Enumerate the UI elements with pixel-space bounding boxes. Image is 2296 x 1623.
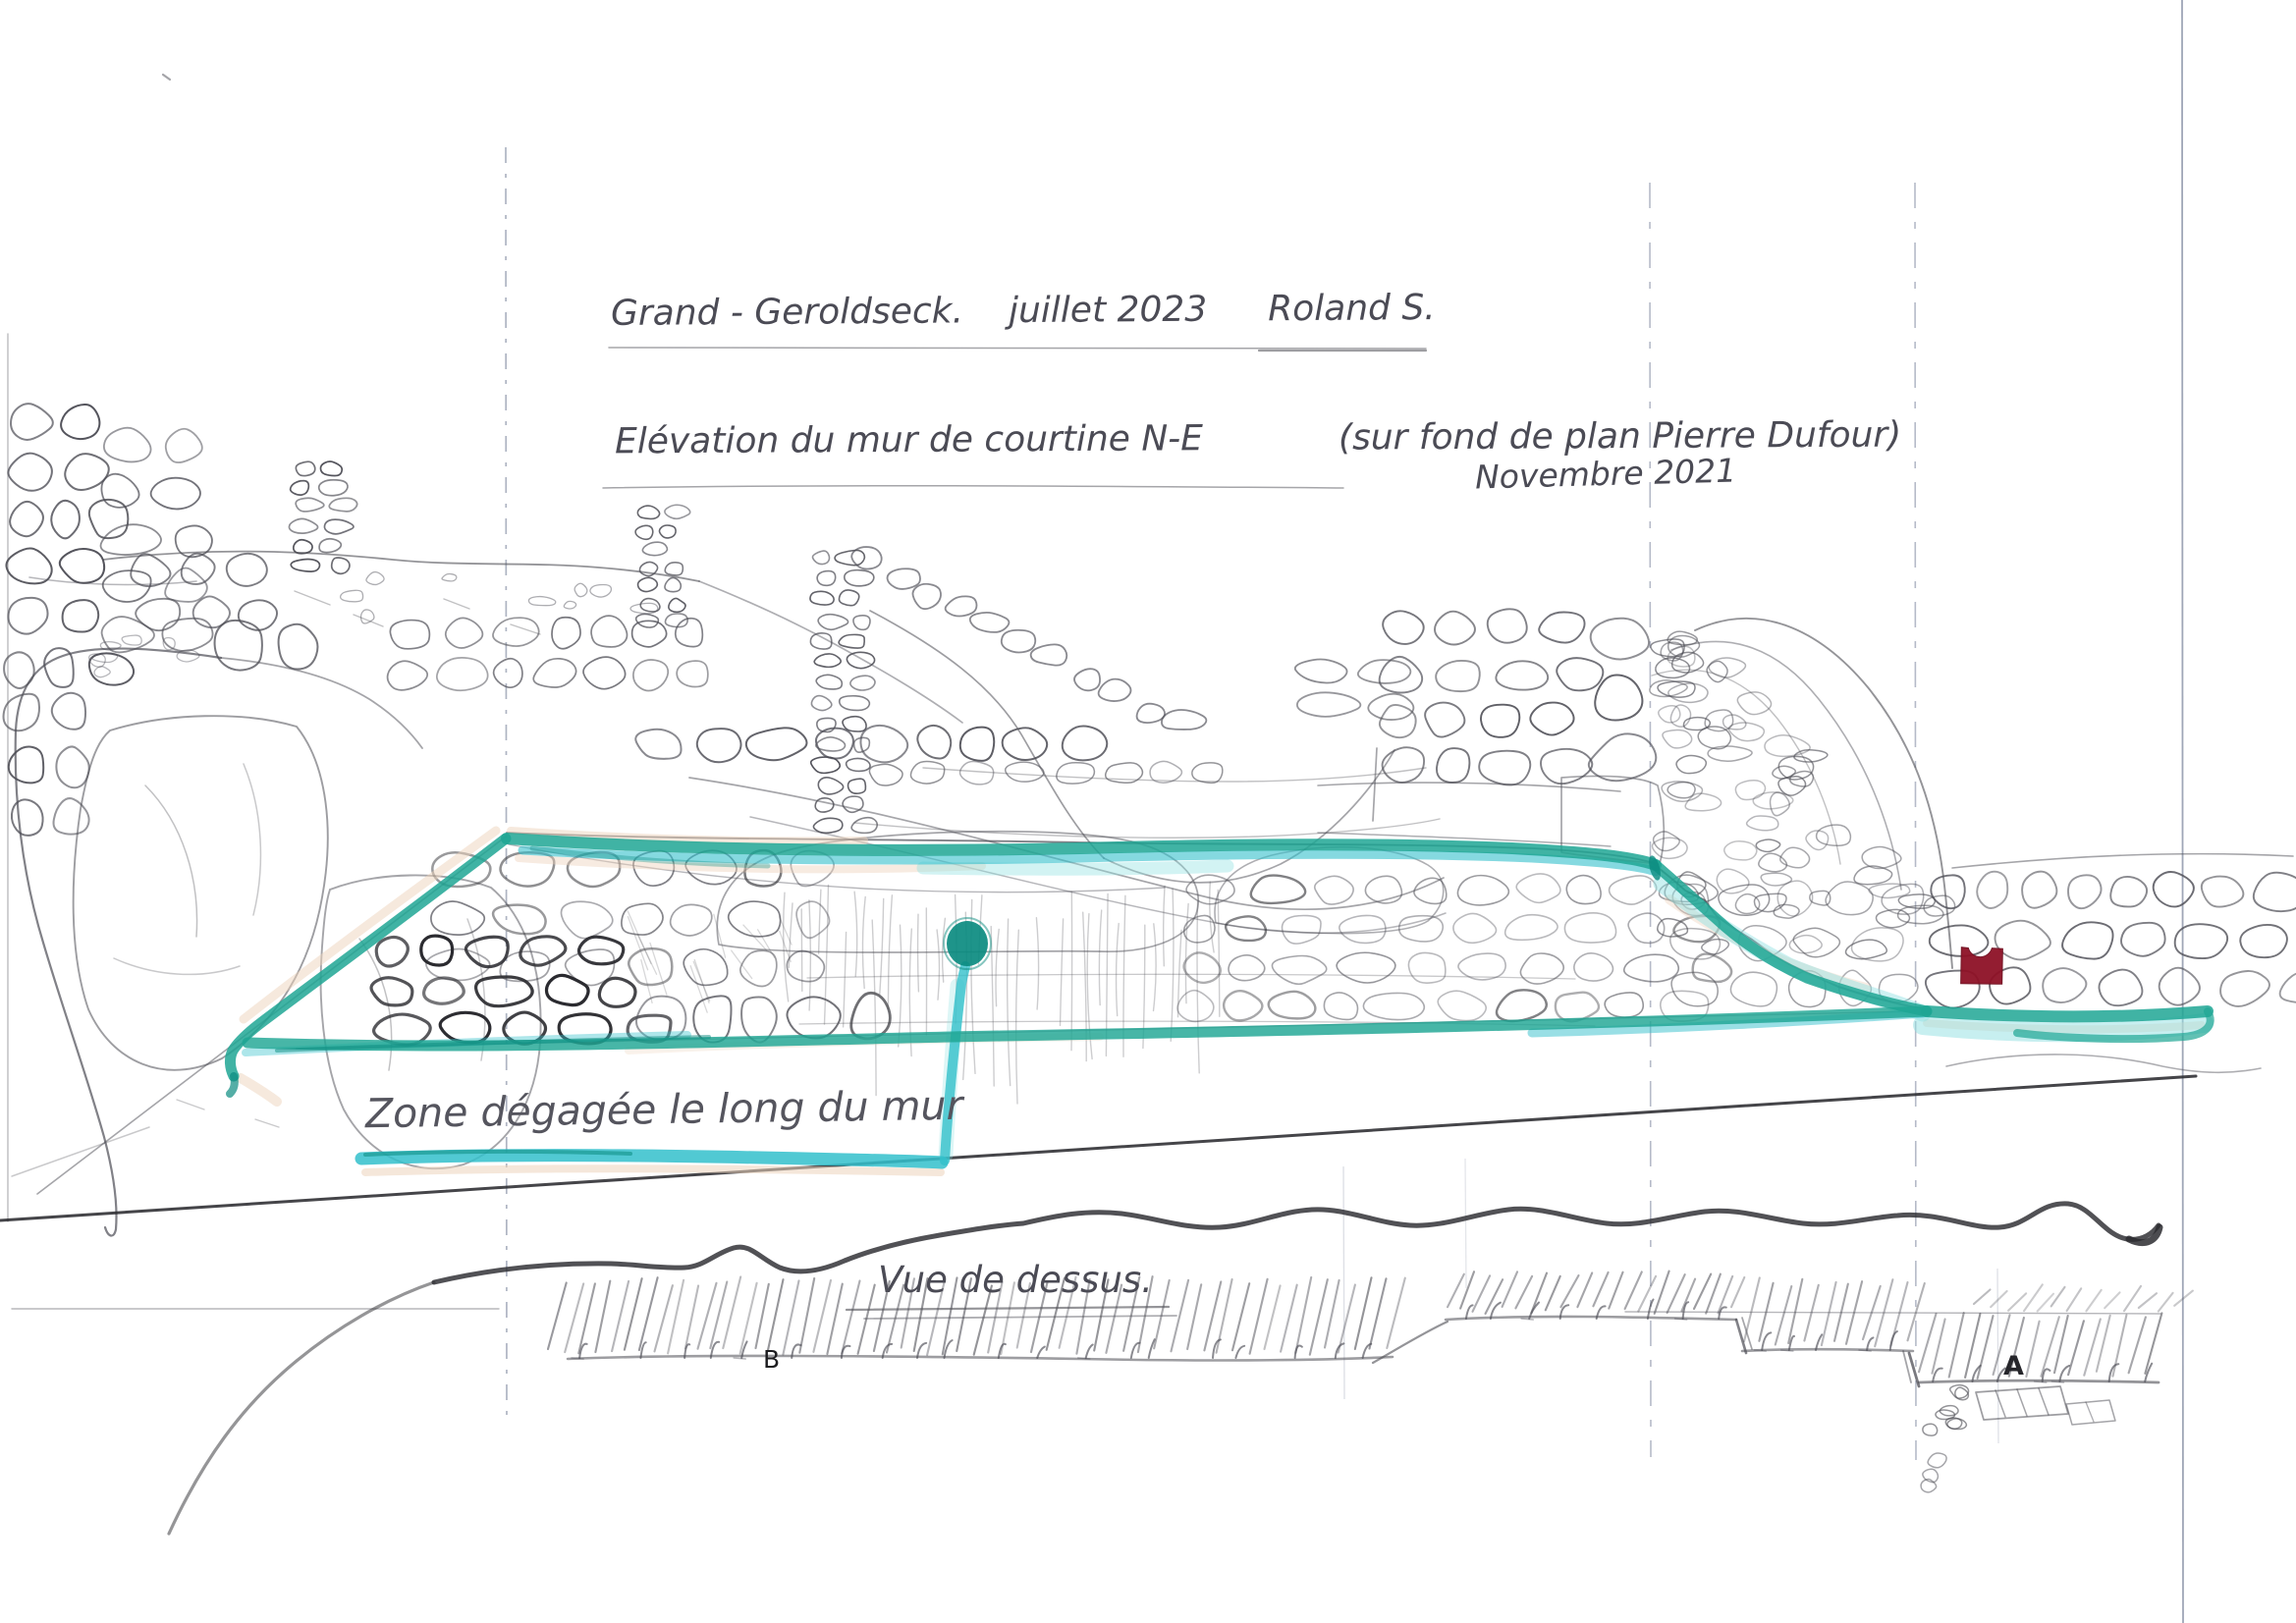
scanned-sketch-page: Grand - Geroldseck.juillet 2023Roland S.…	[0, 0, 2296, 1623]
title-date: juillet 2023	[1009, 290, 1207, 331]
title-line: Grand - Geroldseck.juillet 2023Roland S.	[611, 288, 1436, 334]
subtitle-text: Elévation du mur de courtine N-E	[615, 418, 1203, 461]
title-author: Roland S.	[1268, 288, 1436, 329]
ink-profile-lines	[0, 1076, 2196, 1534]
top-view-label: Vue de dessus.	[878, 1259, 1153, 1301]
subtitle-source: (sur fond de plan Pierre Dufour)	[1339, 415, 1901, 459]
construction-lines	[506, 0, 2183, 1623]
zone-label: Zone dégagée le long du mur	[365, 1082, 963, 1137]
wall-texture	[628, 882, 1220, 1104]
sketch-canvas	[0, 0, 2296, 1623]
stone-masonry	[4, 404, 2296, 1045]
subtitle-source-date: Novembre 2021	[1475, 452, 1737, 497]
title-site: Grand - Geroldseck.	[611, 291, 963, 334]
marker-a-label: A	[2003, 1351, 2024, 1381]
marker-b-label: B	[763, 1345, 780, 1374]
teal-dot-marker	[947, 921, 988, 966]
